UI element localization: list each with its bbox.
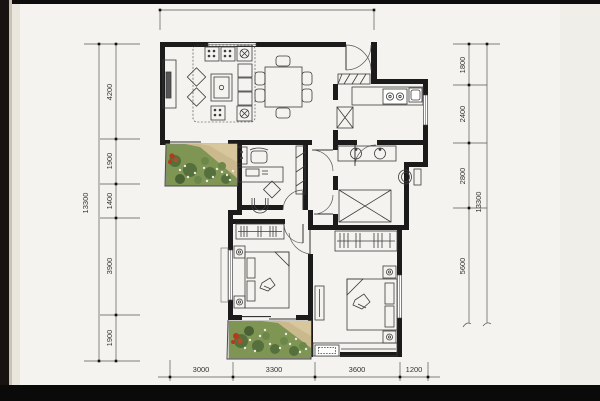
kitchen-sink [409, 88, 422, 102]
master-window [397, 275, 401, 318]
bottom-seg-label: 3600 [349, 365, 366, 374]
left-seg-label: 4200 [105, 84, 114, 101]
ac-unit-box [315, 345, 339, 356]
left-seg-label: 1400 [105, 193, 114, 210]
photo-frame-top [0, 0, 600, 4]
kitchen-window [423, 95, 427, 125]
stove [383, 89, 407, 104]
living-balcony-garden [166, 144, 237, 186]
photo-frame-bottom [0, 385, 600, 401]
right-seg-label: 2400 [458, 106, 467, 123]
right-seg-label: 5600 [458, 258, 467, 275]
right-seg-label: 2800 [458, 168, 467, 185]
left-total-label: 13300 [81, 193, 90, 214]
floor-plan-svg: 4200 1900 1400 3900 1900 13300 1800 2400… [0, 0, 600, 401]
photo-frame-left [0, 0, 9, 401]
left-seg-label: 1900 [105, 330, 114, 347]
left-seg-label: 1900 [105, 153, 114, 170]
right-total-label: 13300 [474, 192, 483, 213]
bottom-seg-label: 1200 [406, 365, 423, 374]
bedroom-balcony-garden [229, 321, 311, 358]
left-seg-label: 3900 [105, 258, 114, 275]
paper-shade-right [560, 4, 600, 386]
right-seg-label: 1800 [458, 57, 467, 74]
bottom-seg-label: 3000 [193, 365, 210, 374]
bottom-seg-label: 3300 [266, 365, 283, 374]
floor-plan-photo: 4200 1900 1400 3900 1900 13300 1800 2400… [0, 0, 600, 401]
photo-frame-left-highlight [9, 0, 12, 401]
